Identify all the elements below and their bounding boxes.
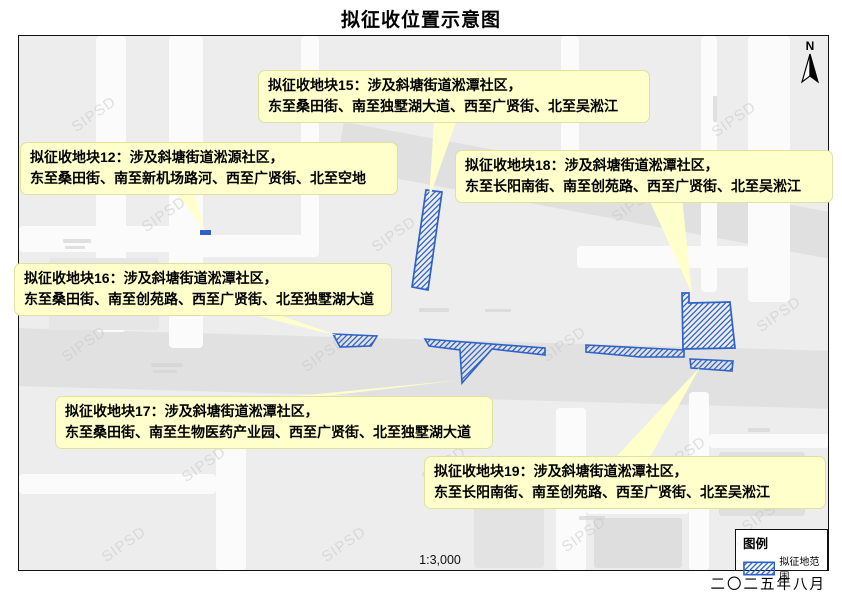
callout-15-line2: 东至桑田街、南至独墅湖大道、西至广贤街、北至吴淞江 xyxy=(268,96,640,117)
callout-box-15: 拟征收地块15：涉及斜塘街道淞潭社区， 东至桑田街、南至独墅湖大道、西至广贤街、… xyxy=(258,70,650,123)
watermark-text: SIPSD xyxy=(369,213,420,256)
watermark-text: SIPSD xyxy=(754,293,805,336)
callout-box-17: 拟征收地块17：涉及斜塘街道淞潭社区， 东至桑田街、南至生物医药产业园、西至广贤… xyxy=(55,396,493,449)
north-arrow: N xyxy=(796,40,824,89)
legend-item-label: 拟征地范围 xyxy=(779,553,827,583)
north-arrow-icon xyxy=(799,52,821,84)
watermark-text: SIPSD xyxy=(299,333,350,376)
callout-15-line1: 拟征收地块15：涉及斜塘街道淞潭社区， xyxy=(268,75,640,96)
callout-16-line1: 拟征收地块16：涉及斜塘街道淞潭社区， xyxy=(24,268,382,289)
watermark-text: SIPSD xyxy=(69,93,120,136)
watermark-text: SIPSD xyxy=(99,523,150,566)
watermark-text: SIPSD xyxy=(319,523,370,566)
legend-box: 图例 拟征地范围 xyxy=(735,529,828,571)
callout-18-line1: 拟征收地块18：涉及斜塘街道淞潭社区， xyxy=(465,155,823,176)
watermark-text: SIPSD xyxy=(139,193,190,236)
callout-19-line1: 拟征收地块19：涉及斜塘街道淞潭社区， xyxy=(434,461,816,482)
callout-12-line1: 拟征收地块12：涉及斜塘街道淞源社区， xyxy=(30,147,388,168)
legend-row: 拟征地范围 xyxy=(743,553,827,583)
callout-box-12: 拟征收地块12：涉及斜塘街道淞源社区， 东至桑田街、南至新机场路河、西至广贤街、… xyxy=(20,142,398,195)
watermark-text: SIPSD xyxy=(559,513,610,556)
legend-title: 图例 xyxy=(743,533,827,552)
watermark-text: SIPSD xyxy=(179,443,230,486)
page-title: 拟征收位置示意图 xyxy=(0,5,842,32)
callout-17-line1: 拟征收地块17：涉及斜塘街道淞潭社区， xyxy=(65,401,483,422)
scale-label: 1:3,000 xyxy=(380,553,500,567)
callout-18-line2: 东至长阳南街、南至创苑路、西至广贤街、北至吴淞江 xyxy=(465,176,823,197)
callout-16-line2: 东至桑田街、南至创苑路、西至广贤街、北至独墅湖大道 xyxy=(24,289,382,310)
callout-19-line2: 东至长阳南街、南至创苑路、西至广贤街、北至吴淞江 xyxy=(434,482,816,503)
callout-12-line2: 东至桑田街、南至新机场路河、西至广贤街、北至空地 xyxy=(30,168,388,189)
watermark-text: SIPSD xyxy=(59,323,110,366)
callout-box-18: 拟征收地块18：涉及斜塘街道淞潭社区， 东至长阳南街、南至创苑路、西至广贤街、北… xyxy=(455,150,833,203)
page: 拟征收位置示意图 xyxy=(0,0,842,595)
callout-box-16: 拟征收地块16：涉及斜塘街道淞潭社区， 东至桑田街、南至创苑路、西至广贤街、北至… xyxy=(14,263,392,316)
callout-box-19: 拟征收地块19：涉及斜塘街道淞潭社区， 东至长阳南街、南至创苑路、西至广贤街、北… xyxy=(424,456,826,509)
legend-hatch-swatch xyxy=(743,561,775,576)
watermark-text: SIPSD xyxy=(709,98,760,141)
watermark-text: SIPSD xyxy=(539,323,590,366)
north-label: N xyxy=(796,40,824,52)
callout-17-line2: 东至桑田街、南至生物医药产业园、西至广贤街、北至独墅湖大道 xyxy=(65,422,483,443)
